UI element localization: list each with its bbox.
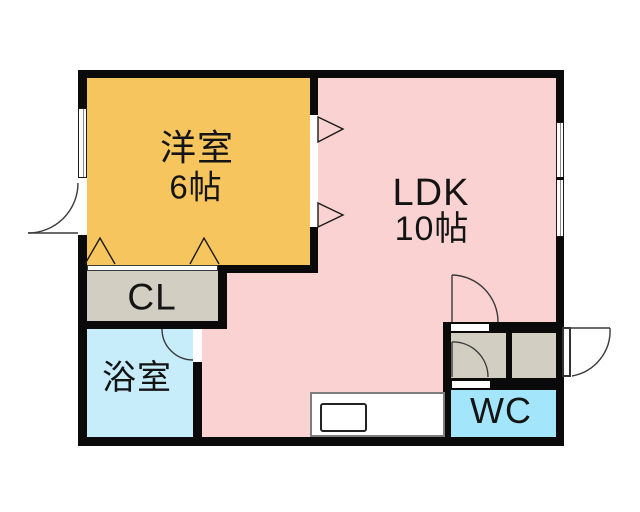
wall-closet-right (218, 265, 227, 329)
wall-left-upper (78, 78, 87, 108)
partition-opening (310, 115, 318, 227)
hall-door-gap (451, 324, 489, 331)
bathroom-door-gap (193, 329, 202, 362)
wall-right-upper (556, 78, 564, 122)
door-left-arc (28, 183, 78, 233)
floor-plan: 洋室 6帖 LDK 10帖 CL 浴室 WC (0, 0, 640, 512)
room-ldk-label: LDK (393, 174, 470, 212)
entrance-door-arc (572, 328, 610, 376)
room-ldk-left (227, 273, 318, 437)
room-bathroom-label: 浴室 (102, 361, 172, 395)
room-toilet-label: WC (470, 393, 532, 429)
kitchen-sink (320, 403, 367, 432)
wall-western-bottom (218, 265, 318, 273)
room-ldk-size: 10帖 (395, 212, 470, 246)
window-left (78, 108, 87, 178)
closet-door-track (87, 265, 218, 271)
window-pane (83, 109, 84, 177)
door-gap-left-exterior (79, 178, 87, 235)
entrance-door-leaf (562, 327, 571, 377)
room-ldk-left-lower (202, 329, 227, 437)
window-right-divider (556, 177, 564, 180)
room-hall-left (451, 333, 506, 378)
room-western-size: 6帖 (169, 171, 222, 204)
toilet-door-gap (452, 381, 490, 388)
wall-bottom (78, 437, 564, 446)
room-hall-right (512, 333, 556, 378)
room-closet-label: CL (127, 279, 176, 316)
wall-left-lower (78, 235, 87, 437)
wall-partition-upper (310, 78, 318, 115)
wall-closet-bottom (78, 321, 227, 329)
room-western-label: 洋室 (160, 130, 234, 166)
wall-hall-divider (506, 333, 512, 378)
wall-top (78, 70, 564, 78)
